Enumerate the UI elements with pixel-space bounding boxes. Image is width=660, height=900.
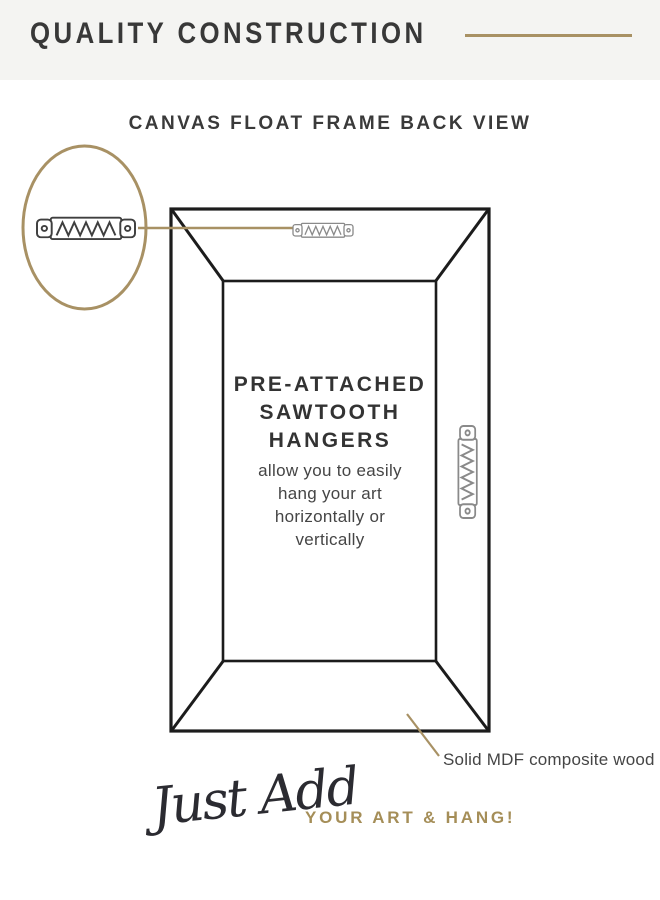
sawtooth-hanger-zoom-icon xyxy=(37,218,135,239)
heading-line-1: PRE-ATTACHED xyxy=(171,371,489,399)
sawtooth-hanger-top-icon xyxy=(293,223,353,237)
frame-heading: PRE-ATTACHED SAWTOOTH HANGERS xyxy=(171,371,489,455)
body-line-2: hang your art xyxy=(171,482,489,505)
frame-body-text: allow you to easily hang your art horizo… xyxy=(171,459,489,551)
body-line-3: horizontally or xyxy=(171,505,489,528)
material-callout: Solid MDF composite wood xyxy=(443,750,655,770)
product-infographic: QUALITY CONSTRUCTION CANVAS FLOAT FRAME … xyxy=(0,0,660,900)
body-line-1: allow you to easily xyxy=(171,459,489,482)
footer-cta-text: YOUR ART & HANG! xyxy=(305,808,515,828)
heading-line-3: HANGERS xyxy=(171,427,489,455)
heading-line-2: SAWTOOTH xyxy=(171,399,489,427)
body-line-4: vertically xyxy=(171,528,489,551)
